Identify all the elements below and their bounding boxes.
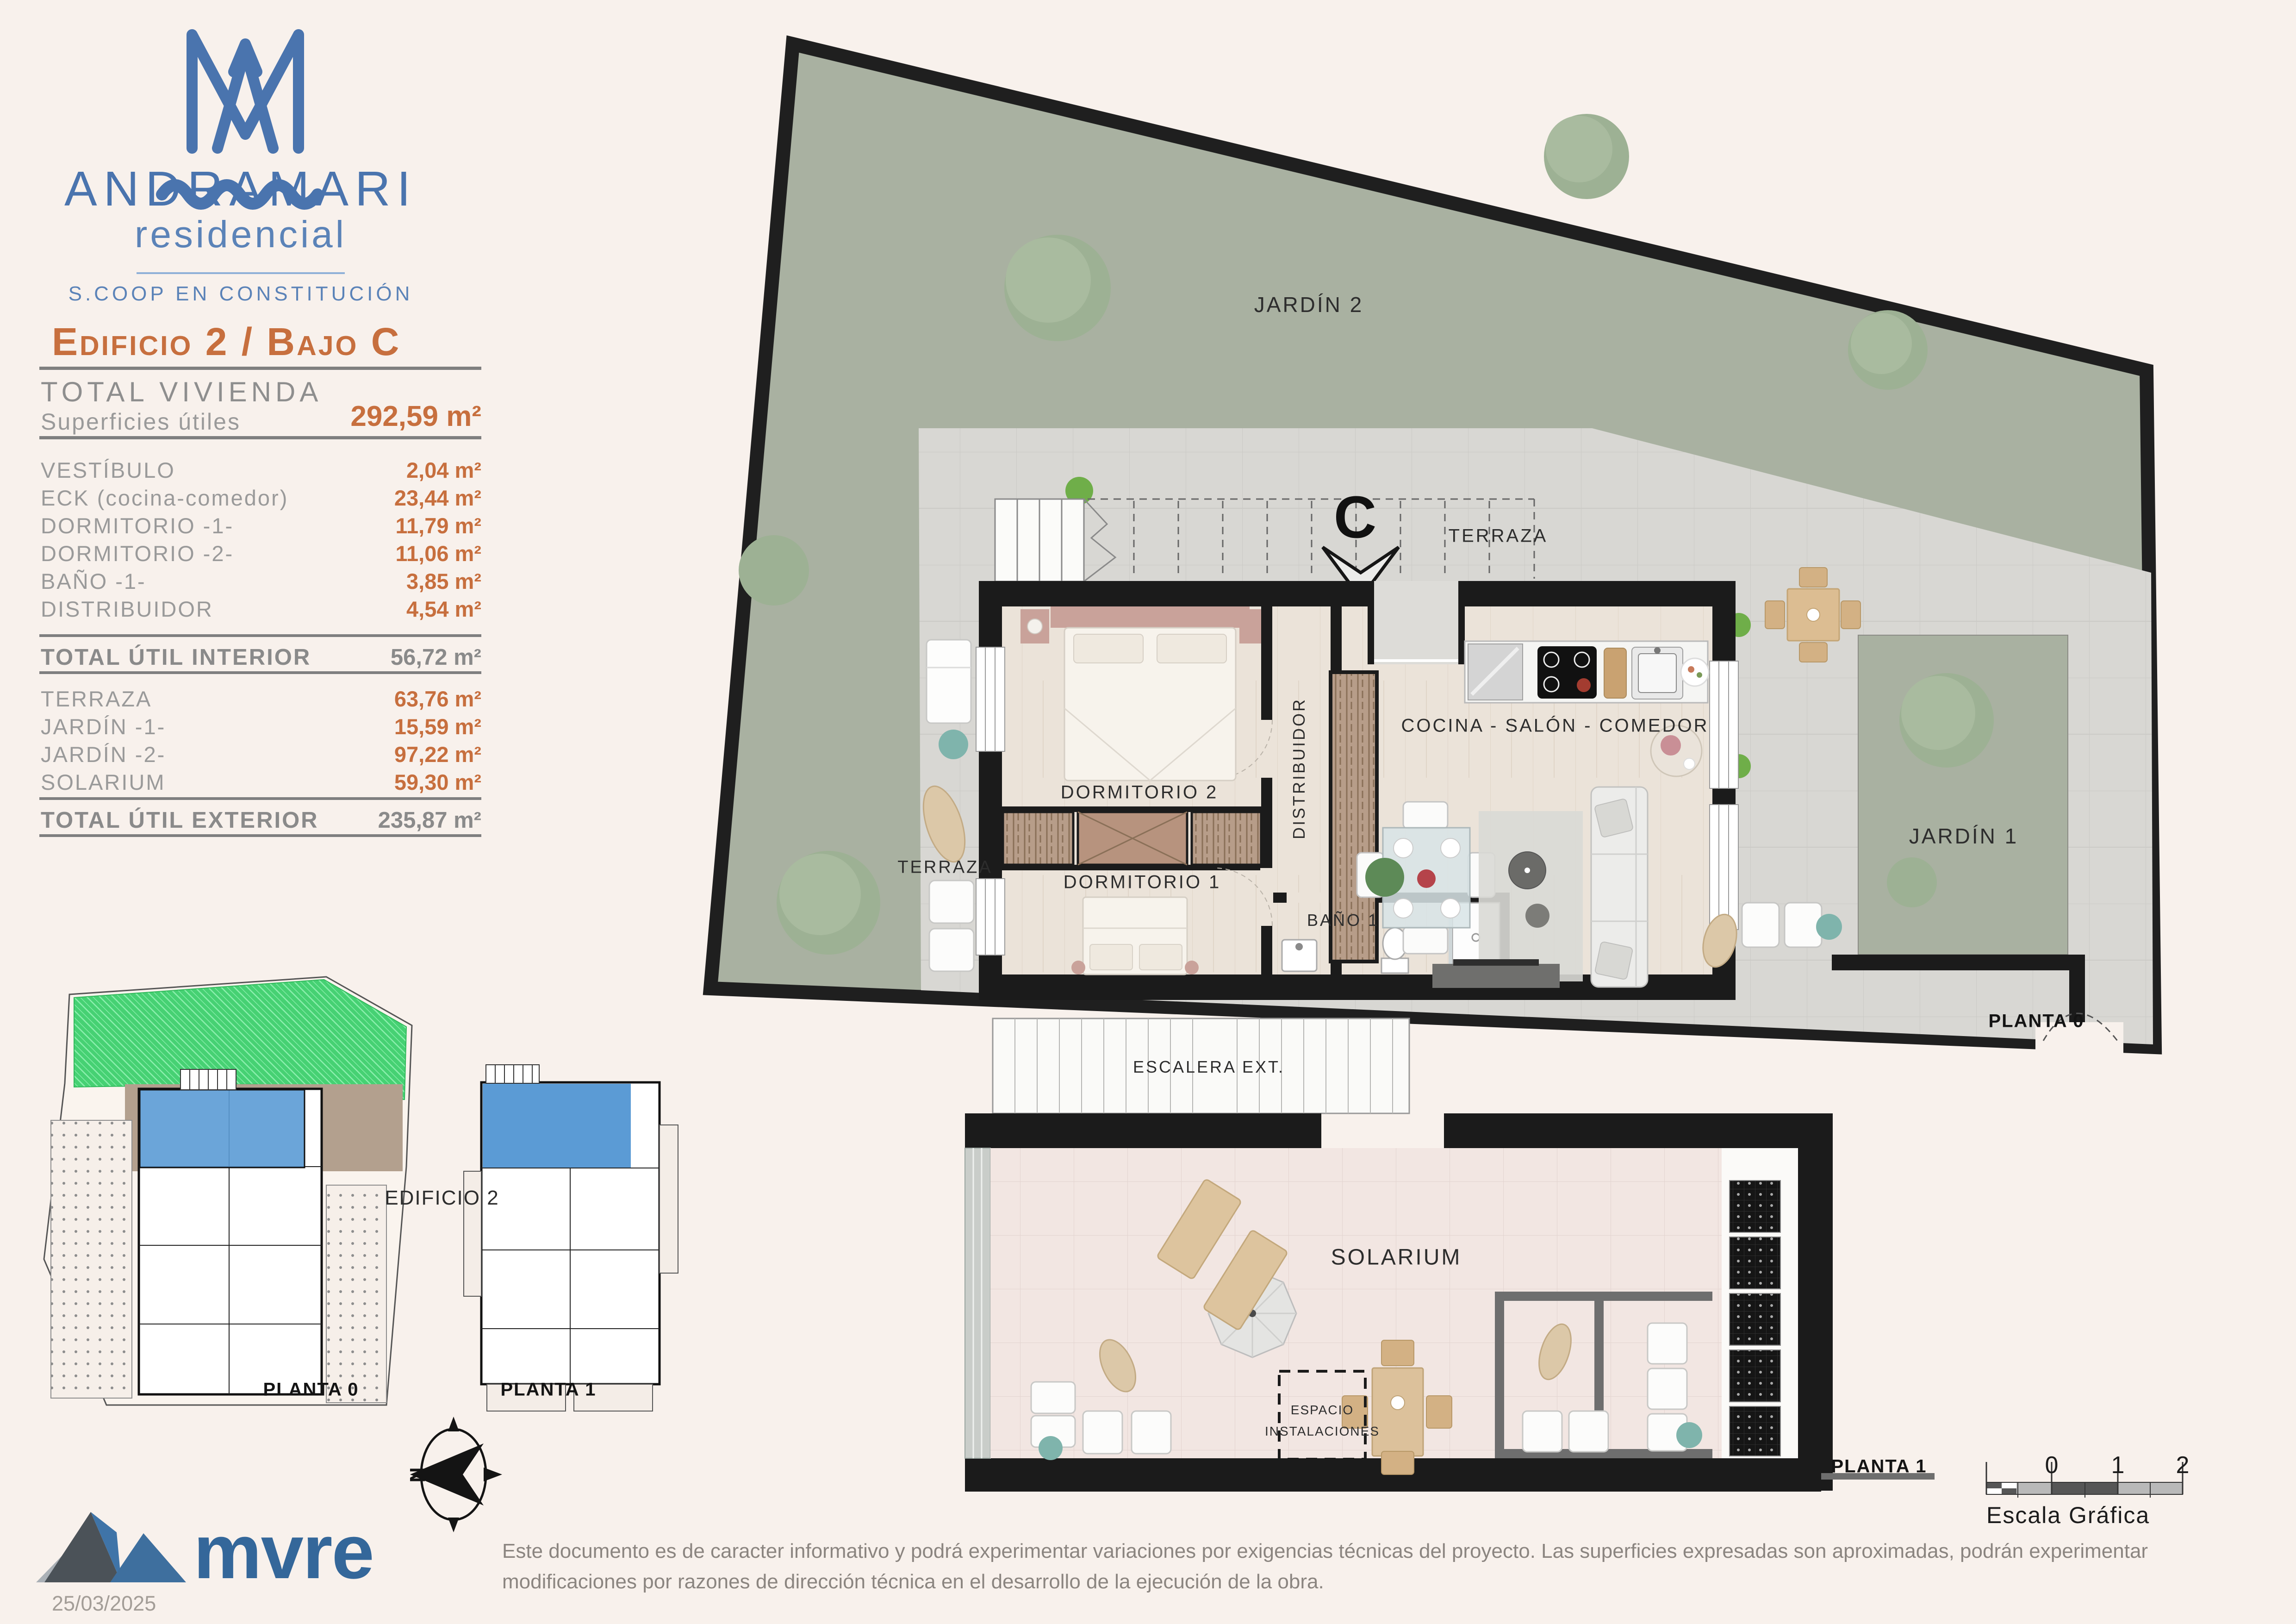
- row-label: JARDÍN -1-: [41, 714, 166, 739]
- row-label: BAÑO -1-: [41, 568, 146, 594]
- scale-caption: Escala Gráfica: [1986, 1502, 2150, 1529]
- scale-tick-1: 1: [2111, 1451, 2125, 1479]
- main-plan-planta0: [710, 44, 2155, 1074]
- label-solarium: SOLARIUM: [1331, 1245, 1462, 1270]
- document-date: 25/03/2025: [52, 1592, 156, 1616]
- unit-title: Edificio 2 / Bajo C: [52, 319, 401, 364]
- divider: [39, 671, 481, 674]
- brand-tagline: residencial: [135, 213, 347, 256]
- highlighted-unit: [140, 1090, 305, 1168]
- row-label: DISTRIBUIDOR: [41, 596, 213, 622]
- label-planta1-main: PLANTA 1: [1831, 1456, 1927, 1477]
- row-label: SOLARIUM: [41, 769, 166, 795]
- row-value: 2,04 m²: [406, 457, 481, 483]
- label-terraza-left: TERRAZA: [897, 858, 992, 878]
- row-label: JARDÍN -2-: [41, 742, 166, 767]
- mvre-logo-text: mvre: [193, 1508, 373, 1596]
- label-planta0-main: PLANTA 0: [1988, 1011, 2084, 1032]
- row-value: 97,22 m²: [394, 742, 481, 767]
- row-value: 4,54 m²: [406, 596, 481, 622]
- row-label: VESTÍBULO: [41, 457, 175, 483]
- plant-icon: [1365, 858, 1404, 897]
- label-planta0-mini: PLANTA 0: [263, 1380, 359, 1400]
- mvre-logo-icon: [36, 1512, 186, 1582]
- entry-porch: [1368, 581, 1465, 664]
- divider: [39, 834, 481, 837]
- interior-total-value: 56,72 m²: [391, 644, 481, 670]
- jardin1-wall: [1832, 955, 2085, 970]
- exterior-total-label: TOTAL ÚTIL EXTERIOR: [41, 807, 319, 833]
- bed-dormitorio1: [1071, 897, 1199, 974]
- solar-panels: [1730, 1181, 1780, 1456]
- scale-tick-0: 0: [2045, 1451, 2059, 1479]
- row-value: 11,06 m²: [395, 541, 481, 566]
- row-value: 59,30 m²: [394, 769, 481, 795]
- row-value: 15,59 m²: [394, 714, 481, 739]
- highlighted-solarium: [483, 1084, 631, 1168]
- mini-plan-planta0: [44, 977, 412, 1405]
- floorplan-sheet: ANDRAMARI residencial S.COOP EN CONSTITU…: [0, 0, 2296, 1624]
- summary-title: TOTAL VIVIENDA: [41, 376, 322, 408]
- north-label: N: [405, 1467, 430, 1482]
- label-espacio-1: ESPACIO: [1291, 1403, 1354, 1418]
- label-espacio-2: INSTALACIONES: [1265, 1424, 1380, 1439]
- row-label: ECK (cocina-comedor): [41, 485, 288, 511]
- label-dormitorio2: DORMITORIO 2: [1061, 782, 1219, 803]
- summary-total: 292,59 m²: [350, 400, 481, 433]
- label-edificio2-mini: EDIFICIO 2: [385, 1187, 499, 1210]
- disclaimer-text: Este documento es de caracter informativ…: [502, 1536, 2242, 1597]
- scale-bar: [1986, 1462, 2183, 1498]
- label-dormitorio1: DORMITORIO 1: [1064, 872, 1221, 893]
- kitchen-counter: [1465, 641, 1709, 703]
- row-value: 23,44 m²: [394, 485, 481, 511]
- row-label: DORMITORIO -1-: [41, 513, 234, 538]
- label-escalera-ext: ESCALERA EXT.: [1133, 1057, 1285, 1077]
- interior-total-label: TOTAL ÚTIL INTERIOR: [41, 644, 311, 670]
- divider: [39, 436, 481, 439]
- brand-divider: [137, 272, 345, 274]
- row-label: TERRAZA: [41, 686, 152, 712]
- row-label: DORMITORIO -2-: [41, 541, 234, 566]
- row-value: 3,85 m²: [406, 568, 481, 594]
- row-value: 63,76 m²: [394, 686, 481, 712]
- label-bano1: BAÑO 1: [1307, 911, 1379, 930]
- divider: [39, 797, 481, 800]
- row-value: 11,79 m²: [395, 513, 481, 538]
- summary-subtitle: Superficies útiles: [41, 408, 241, 435]
- exterior-total-value: 235,87 m²: [378, 807, 481, 833]
- mini-plan-planta1: [464, 1065, 678, 1411]
- scale-tick-2: 2: [2176, 1451, 2190, 1479]
- label-terraza-top: TERRAZA: [1449, 526, 1548, 547]
- divider: [39, 367, 481, 370]
- divider: [39, 634, 481, 637]
- wardrobes: [1003, 812, 1261, 865]
- label-distribuidor: DISTRIBUIDOR: [1289, 698, 1309, 839]
- unit-marker-c: C: [1334, 484, 1376, 552]
- brand-coop: S.COOP EN CONSTITUCIÓN: [68, 282, 413, 306]
- label-planta1-mini: PLANTA 1: [500, 1380, 596, 1400]
- label-jardin2: JARDÍN 2: [1254, 292, 1363, 317]
- label-jardin1: JARDÍN 1: [1909, 824, 2018, 849]
- brand-name: ANDRAMARI: [64, 161, 417, 217]
- label-cocina-salon-comedor: COCINA - SALÓN - COMEDOR: [1401, 716, 1709, 737]
- solarium-glass-wall: [965, 1148, 990, 1458]
